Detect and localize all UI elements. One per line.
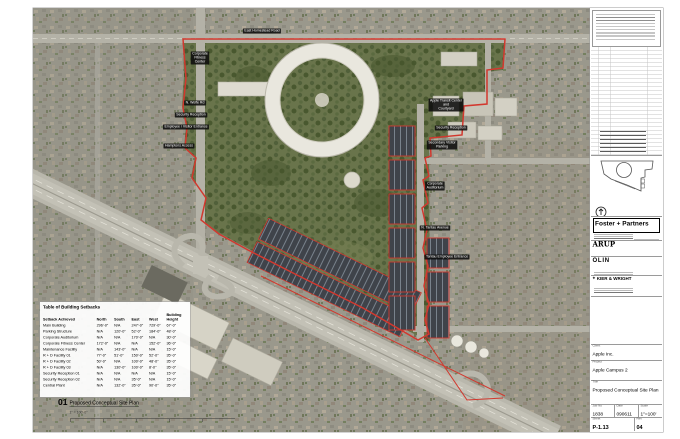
- project-label: Project: [591, 360, 662, 364]
- revision-cell: Rev 04: [635, 417, 662, 431]
- sheet-number-label: Sheet: [591, 417, 635, 421]
- setbacks-column-header: North: [97, 312, 114, 323]
- sheet-number-row: Sheet P-1.13 Rev 04: [591, 417, 662, 431]
- foster-partners-name: Foster + Partners: [594, 219, 660, 228]
- map-label: N. Tantau Avenue: [420, 226, 451, 231]
- project-name: Apple Campus 2: [591, 368, 662, 373]
- map-label: Corporate Auditorium: [425, 182, 445, 191]
- scale-bar: [70, 419, 235, 423]
- map-label: Apple Transit Center and Courtyard: [429, 99, 464, 112]
- setbacks-column-header: Building Height: [166, 312, 187, 323]
- map-label: East Homestead Road: [243, 29, 281, 34]
- kier-wright-block: ✦ KIER & WRIGHT: [591, 275, 662, 297]
- kier-wright-address-lines: [594, 288, 633, 293]
- site-plan-map: East Homestead RoadCorporate Fitness Cen…: [33, 8, 590, 432]
- revision-entries: [600, 131, 646, 152]
- scale-cell: Scale 1"=100': [639, 404, 662, 417]
- key-plan-sketch: [591, 155, 661, 201]
- sheet-number: P-1.13: [591, 425, 635, 430]
- job-label: Job No: [591, 404, 615, 408]
- foster-partners-logo: Foster + Partners: [593, 218, 660, 233]
- setbacks-column-header: Setback Achieved: [43, 312, 97, 323]
- kier-wright-name: KIER & WRIGHT: [597, 276, 632, 281]
- revision-number: 04: [635, 425, 662, 430]
- setbacks-column-header: South: [114, 312, 131, 323]
- sheet-title-label: Title: [591, 380, 662, 384]
- drawing-scale: 1" = 100'-0": [69, 411, 87, 415]
- stamp-area: [591, 296, 662, 345]
- setbacks-table: Table of Building Setbacks Setback Achie…: [40, 302, 190, 397]
- map-label: Employee / Visitor Entrance: [163, 125, 209, 130]
- sheet-title: Proposed Conceptual Site Plan: [591, 388, 662, 393]
- drawing-title-label: 01 Proposed Conceptual Site Plan 1" = 10…: [58, 398, 338, 432]
- job-meta-row: Job No 1838 Date 090611 Scale 1"=100': [591, 404, 662, 418]
- map-label: Hamptons Access: [163, 144, 194, 149]
- map-label: N. Wolfe Rd: [184, 101, 206, 106]
- client-label: Client: [591, 344, 662, 348]
- arup-block: ARUP: [591, 240, 662, 257]
- screenshot-root: { "colors": { "boundary_red": "#d2382e",…: [0, 0, 680, 439]
- notes-text-lines: [596, 14, 655, 42]
- map-label: Corporate Fitness Center: [191, 52, 210, 65]
- arup-logo: ARUP: [591, 240, 662, 249]
- scale-label: Scale: [639, 404, 662, 408]
- map-label: Tantau Employee Entrance: [424, 255, 469, 260]
- drawing-title: Proposed Conceptual Site Plan: [69, 401, 138, 408]
- revision-table: [591, 47, 662, 156]
- job-cell: Job No 1838: [591, 404, 615, 417]
- architect-address-lines: [594, 234, 633, 239]
- general-notes-box: [592, 10, 661, 47]
- date-label: Date: [615, 404, 639, 408]
- sheet-title-block: Title Proposed Conceptual Site Plan: [591, 380, 662, 405]
- key-plan: [591, 155, 662, 217]
- kier-wright-logo-icon: ✦: [592, 276, 596, 282]
- olin-block: OLIN: [591, 256, 662, 276]
- client-name: Apple Inc.: [591, 352, 662, 357]
- setbacks-column-header: East: [132, 312, 149, 323]
- revision-label: Rev: [635, 417, 662, 421]
- setbacks-column-header: West: [149, 312, 166, 323]
- setbacks-body: Main Building296'-0"N/A247'-0"729'-0"67'…: [43, 322, 187, 388]
- setbacks-table-title: Table of Building Setbacks: [43, 305, 190, 310]
- setbacks-row: Central PlantN/A132'-0"35'-0"90'-0"35'-0…: [43, 382, 187, 388]
- project-block: Project Apple Campus 2: [591, 360, 662, 381]
- drawing-sheet: East Homestead RoadCorporate Fitness Cen…: [30, 6, 666, 433]
- date-cell: Date 090611: [615, 404, 639, 417]
- drawing-number: 01: [58, 398, 67, 407]
- map-label: Security Reception: [435, 126, 467, 131]
- olin-logo: OLIN: [591, 256, 662, 264]
- setbacks-header-row: Setback AchievedNorthSouthEastWestBuildi…: [43, 312, 187, 323]
- client-block: Client Apple Inc.: [591, 344, 662, 361]
- map-label: Secondary Visitor Parking: [427, 141, 457, 150]
- title-block: Foster + Partners ARUP OLIN ✦ KIER & WRI…: [590, 8, 663, 432]
- map-label: Security Reception: [175, 113, 207, 118]
- sheet-number-cell: Sheet P-1.13: [591, 417, 635, 431]
- architect-block: Foster + Partners: [591, 216, 662, 241]
